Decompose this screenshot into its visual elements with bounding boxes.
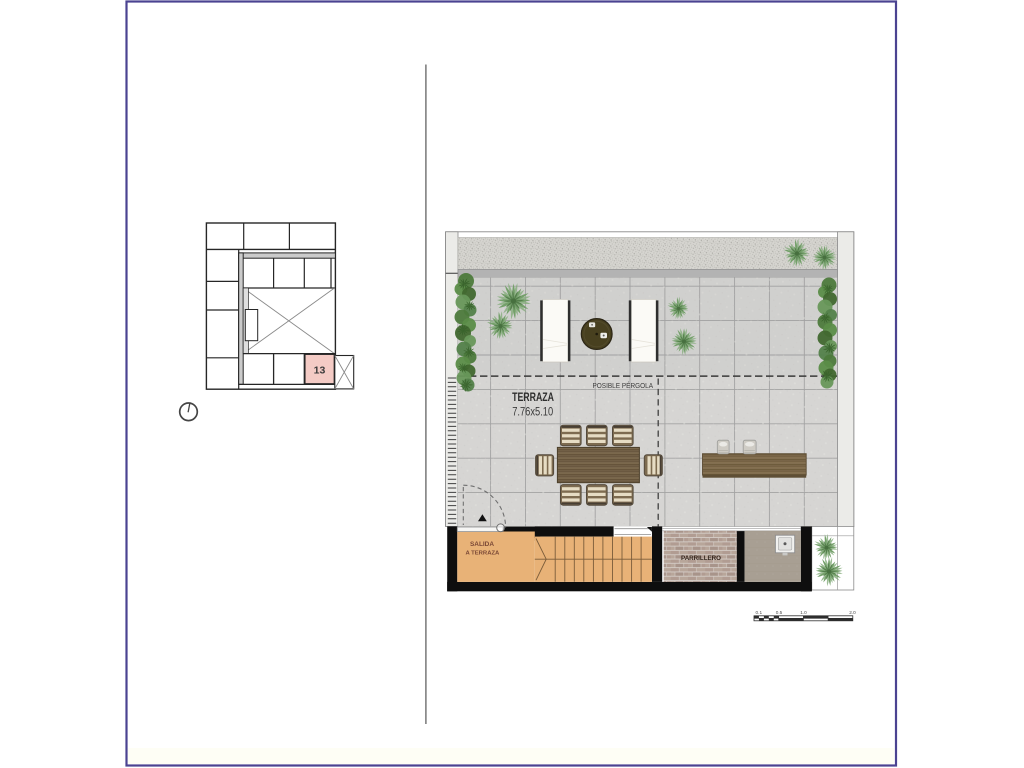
svg-text:POSIBLE PÉRGOLA: POSIBLE PÉRGOLA (593, 381, 654, 390)
svg-text:SALIDA: SALIDA (470, 541, 494, 548)
svg-text:0.1: 0.1 (756, 610, 763, 615)
svg-text:13: 13 (314, 364, 326, 376)
svg-text:1.0: 1.0 (800, 610, 807, 615)
svg-text:TERRAZA: TERRAZA (512, 390, 554, 404)
svg-text:0.5: 0.5 (776, 610, 783, 615)
svg-text:7.76x5.10: 7.76x5.10 (512, 404, 553, 418)
svg-text:PARRILLERO: PARRILLERO (681, 555, 721, 562)
svg-text:A TERRAZA: A TERRAZA (465, 550, 500, 556)
svg-text:2.0: 2.0 (849, 610, 856, 615)
